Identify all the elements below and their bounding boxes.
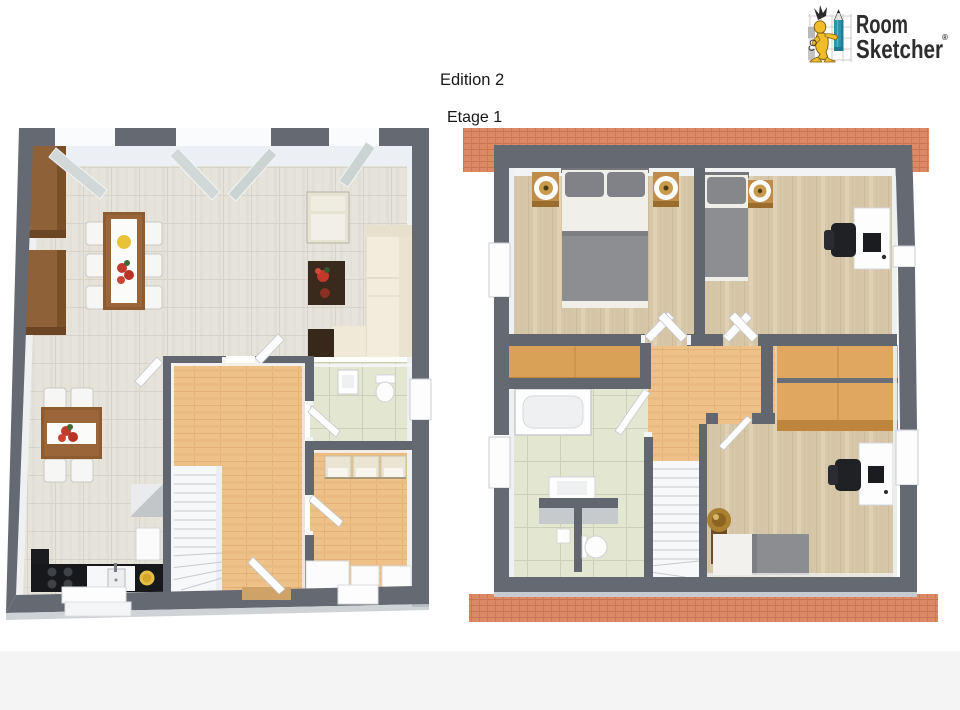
svg-text:Edition 2: Edition 2 [440, 71, 504, 89]
svg-text:Sketcher: Sketcher [856, 34, 943, 64]
svg-text:Etage 1: Etage 1 [447, 109, 502, 126]
svg-text:®: ® [942, 33, 948, 42]
